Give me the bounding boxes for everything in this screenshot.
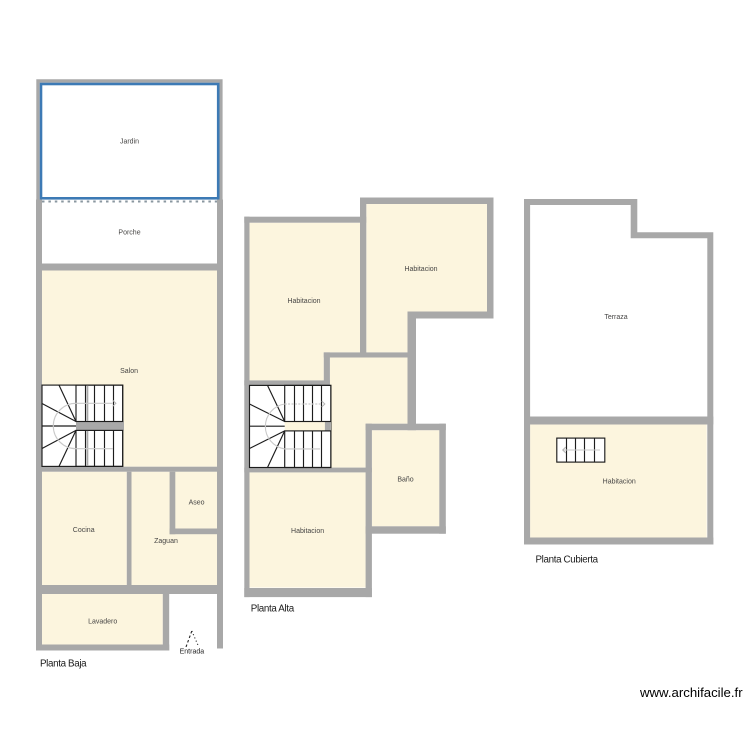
svg-text:Habitacion: Habitacion bbox=[291, 528, 324, 535]
svg-text:Baño: Baño bbox=[397, 477, 413, 484]
svg-text:Jardin: Jardin bbox=[120, 139, 139, 146]
svg-text:www.archifacile.fr: www.archifacile.fr bbox=[639, 685, 743, 700]
svg-text:Habitacion: Habitacion bbox=[404, 266, 437, 273]
svg-text:Entrada: Entrada bbox=[180, 648, 205, 655]
svg-text:Planta Baja: Planta Baja bbox=[40, 658, 87, 669]
svg-text:Habitacion: Habitacion bbox=[287, 298, 320, 305]
svg-text:Planta Alta: Planta Alta bbox=[251, 604, 295, 615]
svg-text:Aseo: Aseo bbox=[189, 500, 205, 507]
svg-text:Lavadero: Lavadero bbox=[88, 618, 117, 625]
svg-text:Terraza: Terraza bbox=[604, 314, 627, 321]
svg-text:Habitacion: Habitacion bbox=[603, 479, 636, 486]
svg-text:Zaguan: Zaguan bbox=[154, 538, 178, 545]
svg-text:Planta Cubierta: Planta Cubierta bbox=[536, 555, 599, 566]
svg-text:Cocina: Cocina bbox=[73, 527, 95, 534]
svg-text:Porche: Porche bbox=[118, 230, 140, 237]
svg-text:Salon: Salon bbox=[120, 368, 138, 375]
